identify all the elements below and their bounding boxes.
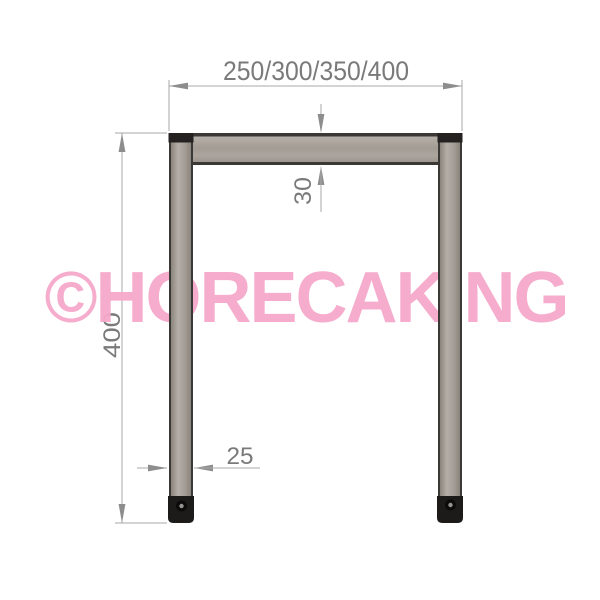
technical-drawing-canvas: 250/300/350/400 30 400 25 ©HO	[0, 0, 600, 600]
right-top-cap	[438, 133, 463, 143]
right-leg-face	[440, 140, 460, 496]
right-leg	[437, 133, 463, 523]
right-foot-adjuster-dot	[448, 503, 452, 507]
left-top-cap	[169, 133, 194, 143]
steel-frame	[0, 0, 600, 600]
bar-face	[193, 137, 438, 163]
left-foot-adjuster-dot	[179, 504, 183, 508]
top-cross-bar	[193, 133, 438, 165]
left-leg	[168, 133, 194, 523]
left-leg-face	[171, 140, 191, 496]
